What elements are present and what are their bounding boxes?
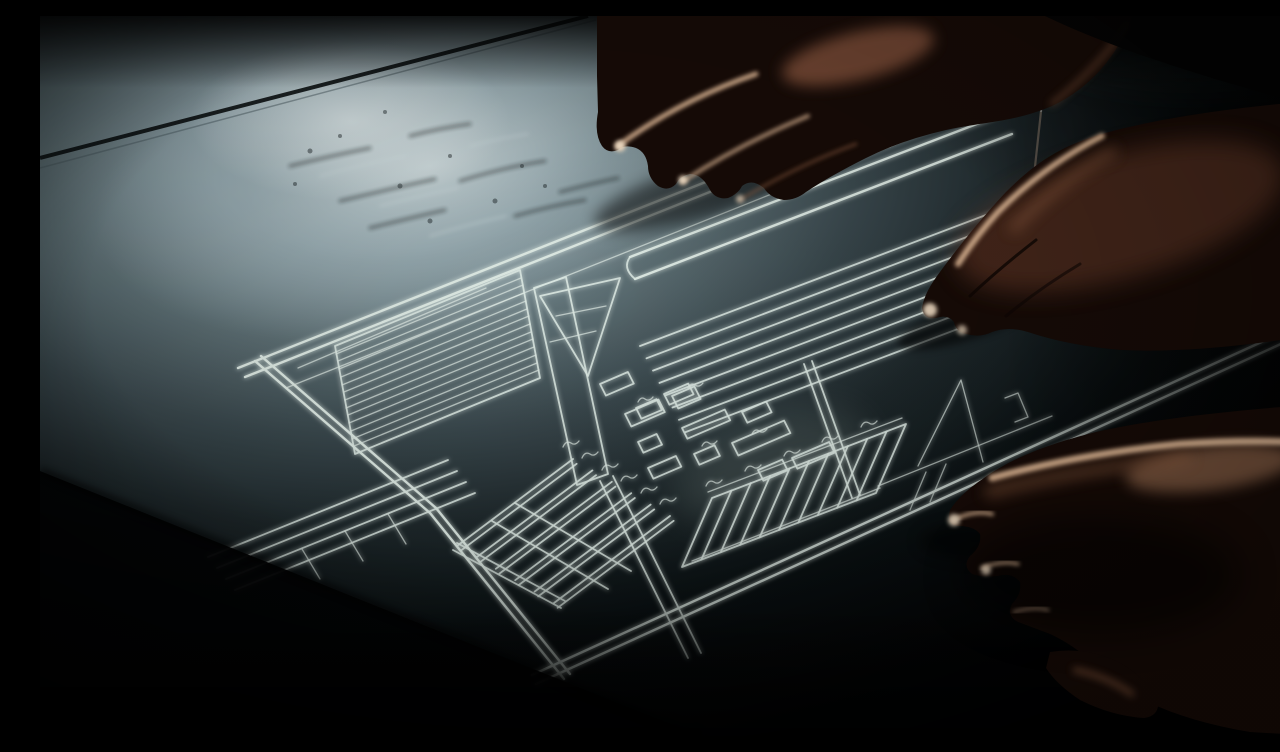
final-vignette — [40, 16, 1280, 736]
scene-photo — [40, 16, 1280, 736]
photo-stage: Dramatically lit photograph of hands ove… — [40, 16, 1280, 736]
